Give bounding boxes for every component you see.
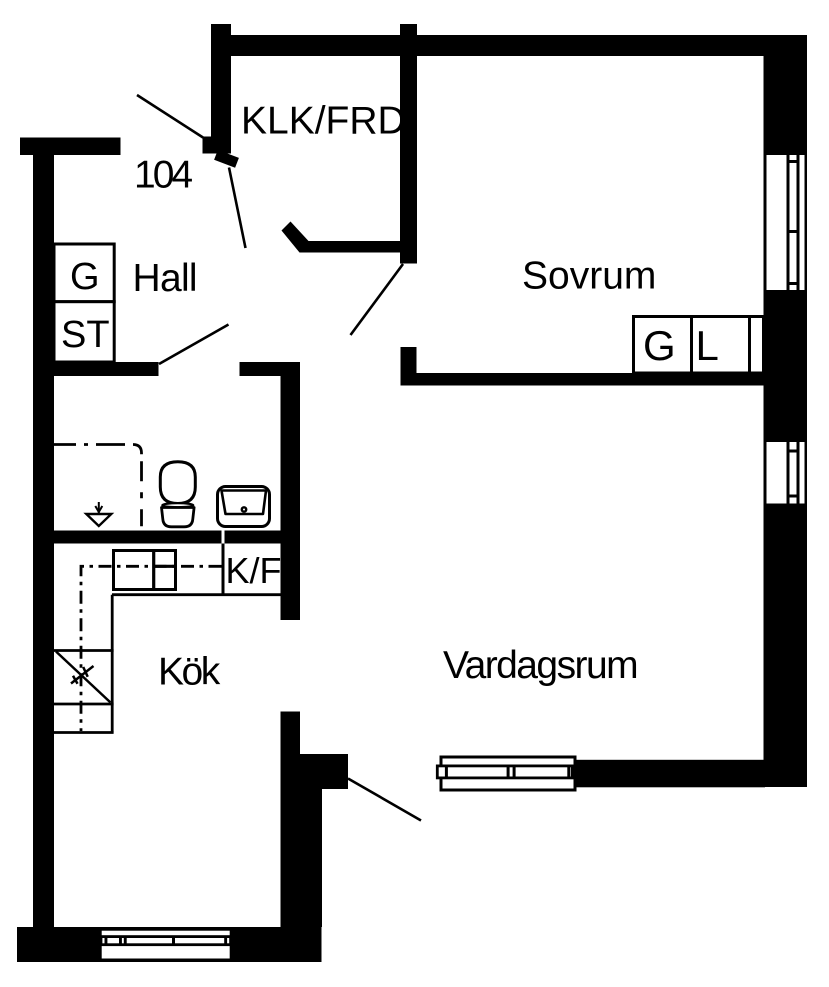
svg-text:G: G xyxy=(643,322,676,369)
svg-text:104: 104 xyxy=(134,153,192,196)
svg-text:ST: ST xyxy=(61,314,110,356)
svg-text:L: L xyxy=(696,322,719,369)
svg-text:Hall: Hall xyxy=(133,257,197,300)
svg-text:K/F: K/F xyxy=(226,550,282,591)
svg-text:KLK/FRD: KLK/FRD xyxy=(241,100,406,143)
svg-text:Kök: Kök xyxy=(158,651,221,694)
svg-text:Vardagsrum: Vardagsrum xyxy=(443,644,637,687)
svg-text:G: G xyxy=(70,256,100,298)
svg-text:Sovrum: Sovrum xyxy=(522,255,656,298)
